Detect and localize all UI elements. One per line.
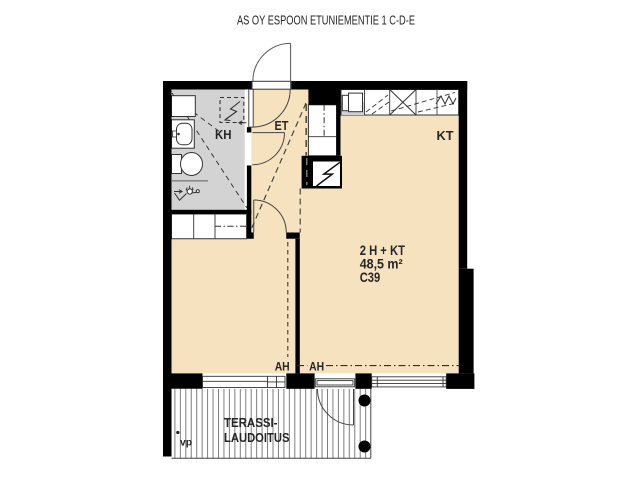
svg-text:C39: C39: [360, 270, 381, 285]
svg-text:KH: KH: [215, 128, 232, 142]
svg-text:ET: ET: [275, 119, 289, 133]
svg-text:LAUDOITUS: LAUDOITUS: [224, 431, 290, 445]
svg-text:TERASSI-: TERASSI-: [224, 416, 278, 430]
svg-text:KT: KT: [437, 128, 454, 143]
svg-text:AH: AH: [275, 360, 290, 374]
svg-text:AH: AH: [309, 360, 324, 374]
svg-text:AS OY ESPOON ETUNIEMENTIE 1 C-: AS OY ESPOON ETUNIEMENTIE 1 C-D-E: [237, 14, 415, 28]
svg-text:vp: vp: [180, 438, 192, 449]
